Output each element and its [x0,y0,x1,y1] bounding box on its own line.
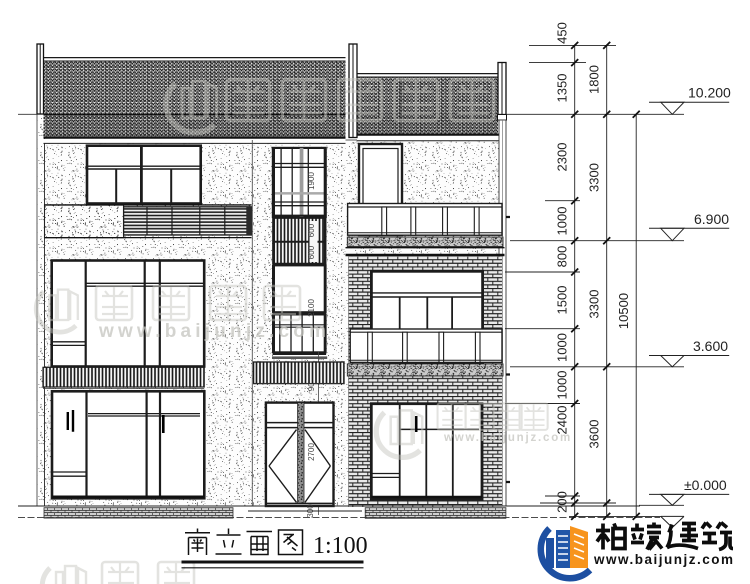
svg-text:1000: 1000 [555,333,570,362]
svg-text:1350: 1350 [555,74,570,103]
svg-text:6.900: 6.900 [694,211,729,227]
svg-text:2400: 2400 [555,406,570,435]
svg-text:800: 800 [555,246,570,268]
svg-text:10.200: 10.200 [688,85,731,101]
svg-text:3300: 3300 [587,163,602,192]
svg-text:1500: 1500 [555,286,570,315]
svg-text:1900: 1900 [307,172,316,190]
svg-text:3.600: 3.600 [693,338,728,354]
svg-text:600: 600 [307,223,316,237]
svg-text:1000: 1000 [555,207,570,236]
svg-text:1000: 1000 [555,371,570,400]
svg-text:200: 200 [555,491,570,513]
svg-text:www.baijunjz.com: www.baijunjz.com [443,432,572,444]
svg-text:www.baijunjz.com: www.baijunjz.com [98,321,330,342]
svg-text:2700: 2700 [307,443,316,461]
svg-text:450: 450 [555,22,570,44]
svg-text:2300: 2300 [555,143,570,172]
svg-text:1:100: 1:100 [313,533,368,559]
svg-text:±0.000: ±0.000 [684,477,727,493]
svg-text:600: 600 [307,245,316,259]
svg-text:10500: 10500 [616,293,631,329]
svg-text:2100: 2100 [307,299,316,317]
svg-text:3300: 3300 [587,290,602,319]
svg-text:3600: 3600 [587,420,602,449]
svg-text:1800: 1800 [587,65,602,94]
